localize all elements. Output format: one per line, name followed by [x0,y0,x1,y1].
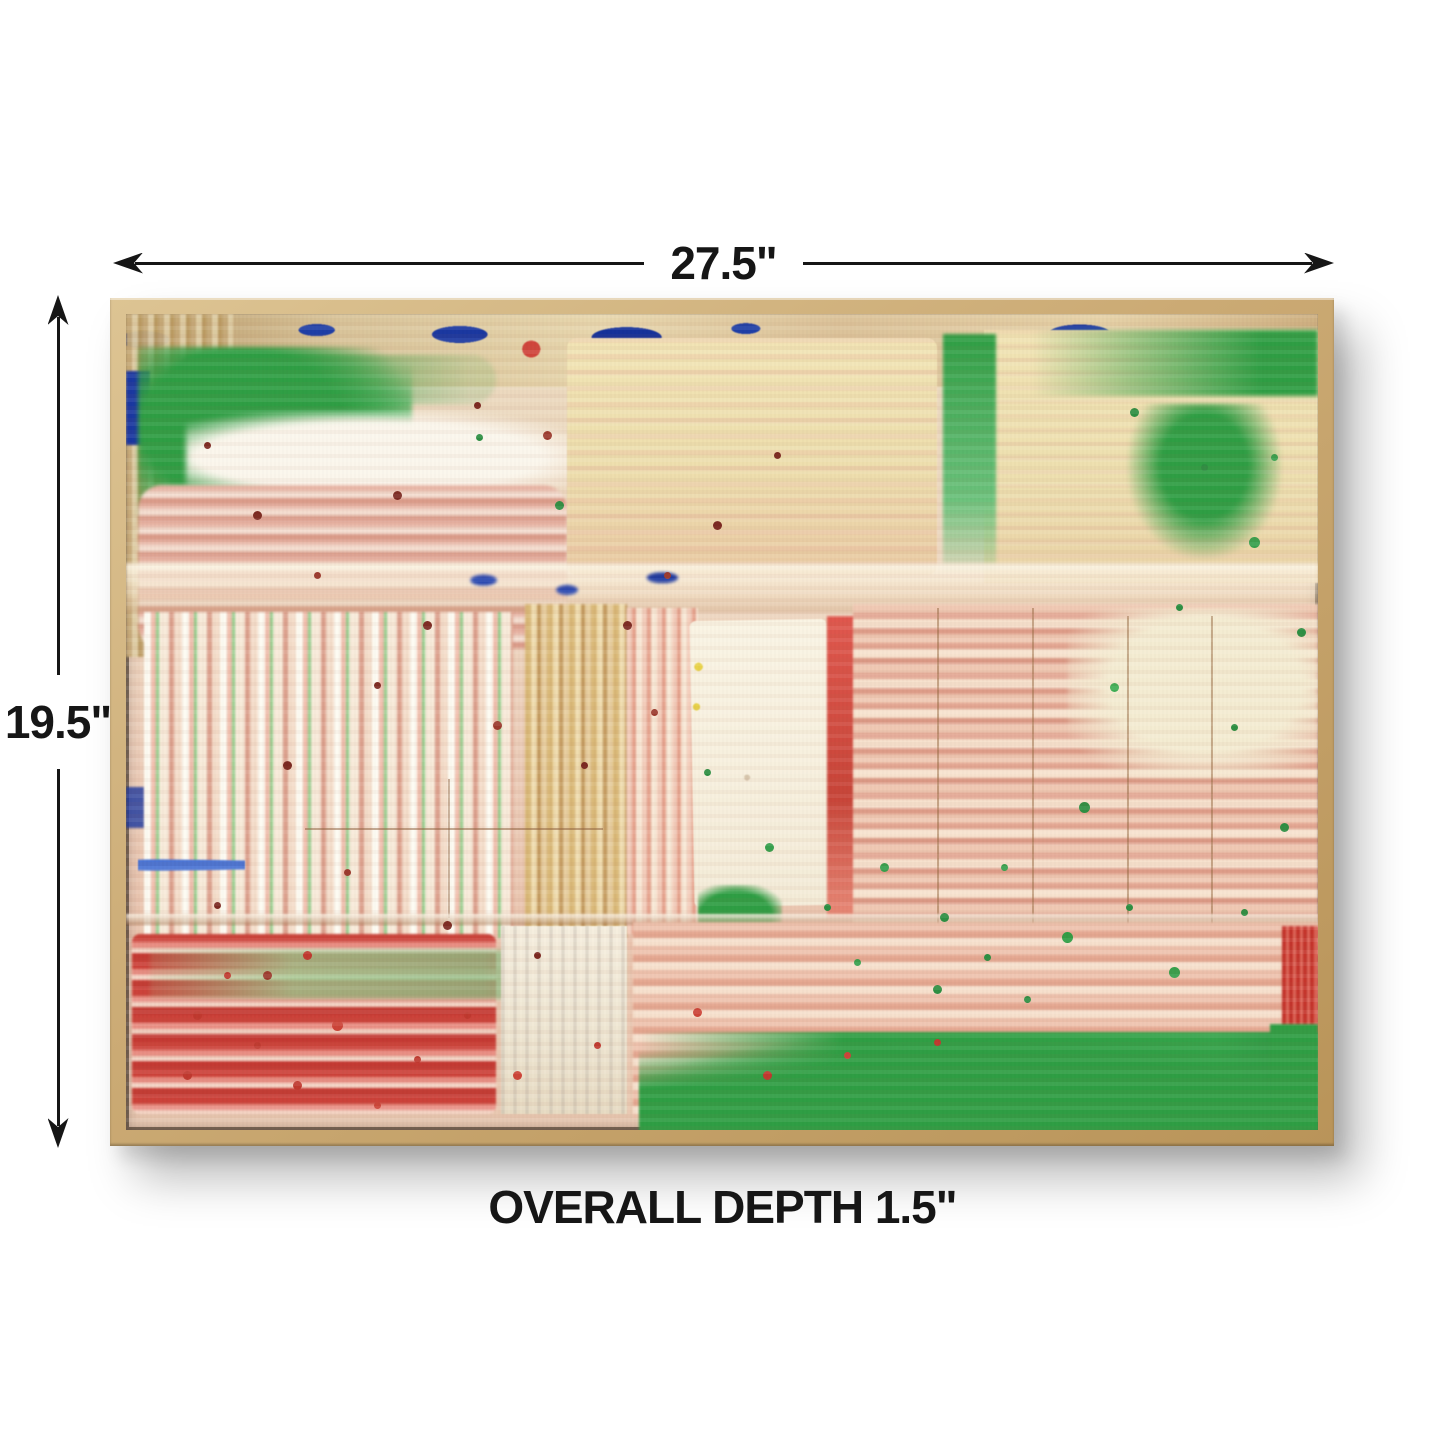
paint-green-top-left [138,347,412,551]
paint-green-bottom [639,1032,1318,1130]
paint-cream-center-block [567,338,937,575]
paint-pink-vertical-streaks [627,608,699,934]
paint-red-right-edge [1282,926,1318,1032]
paint-cream-right-block [984,330,1318,583]
paint-ridge-line [1032,608,1034,951]
paint-green-band [150,950,627,999]
artwork-canvas [126,314,1318,1130]
depth-label: OVERALL DEPTH 1.5" [0,1180,1445,1234]
dimension-line-segment [135,262,644,265]
paint-vertical-stripes-left [144,612,514,938]
height-dimension-label: 19.5" [5,675,111,769]
paint-green-right-edge [1270,1024,1318,1130]
paint-blue-left-edge [126,371,150,444]
width-dimension-line: 27.5" [113,241,1334,285]
paint-pink-right [853,604,1318,955]
paint-top-strip [126,314,1318,387]
paint-green-streak [174,355,496,404]
paint-white-bottom-strip [501,926,626,1114]
paint-green-top-right [1032,330,1318,395]
paint-pink-bottom-right [633,922,1318,1118]
paint-gold-strip [525,604,626,939]
product-dimension-image: 27.5" 19.5" [0,0,1445,1445]
paint-green-vertical-streak [943,334,997,571]
paint-ridge-line [448,779,450,918]
paint-green-patch [698,885,781,946]
paint-red-speckles [126,314,133,321]
paint-blue-left-edge [126,787,145,828]
paint-green-top-right [1127,404,1282,559]
width-dimension-label: 27.5" [644,240,802,286]
paint-blue-dabs [138,857,245,873]
paint-white-smear [186,412,591,502]
paint-middle-ridge [126,563,1318,612]
paint-white-block [690,619,832,907]
paint-pink-left [138,485,567,648]
paint-cream-highlight [1068,608,1318,779]
dimension-line-segment [57,769,60,1127]
paint-red-stripe [827,616,856,918]
dimension-line-segment [803,262,1312,265]
dimension-line-segment [57,317,60,675]
paint-ridge-line [1211,616,1213,942]
paint-red-bottom-left [132,934,496,1114]
paint-ridge-line [305,828,603,830]
paint-bottom-ridge [126,914,1318,925]
paint-texture-overlay [126,314,1318,1130]
paint-tan-left-streaks [126,314,233,657]
height-dimension-line: 19.5" [14,295,102,1148]
paint-ridge-line [1127,616,1129,942]
paint-ridge-line [937,608,939,951]
artwork-frame [110,298,1334,1146]
